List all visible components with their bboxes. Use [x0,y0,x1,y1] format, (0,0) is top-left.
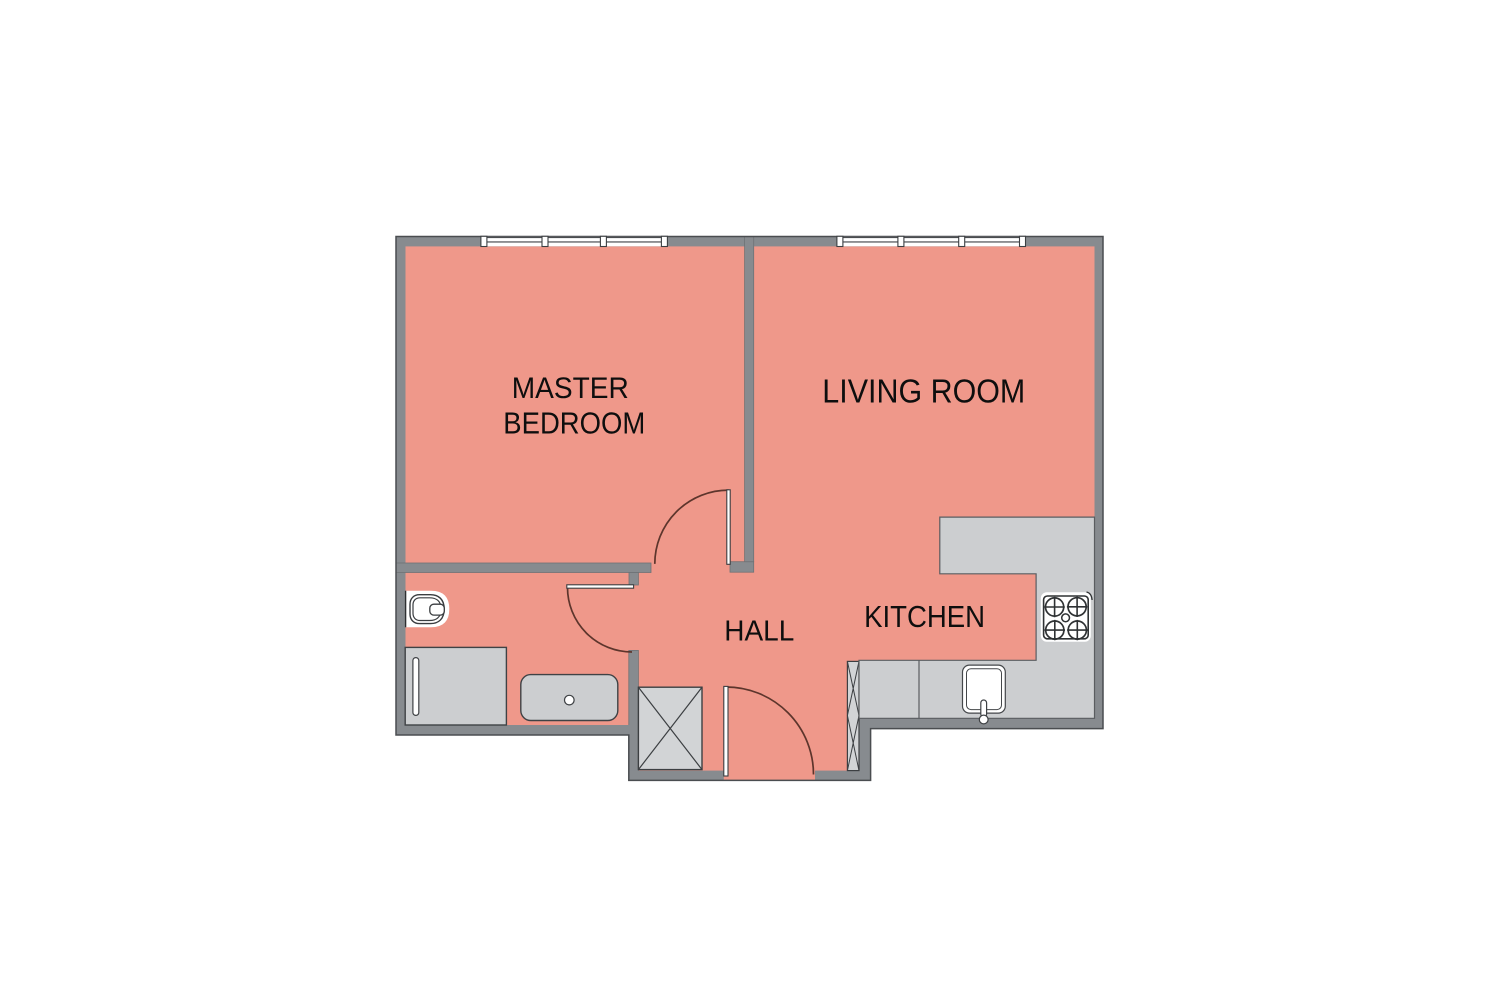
svg-text:BEDROOM: BEDROOM [503,407,645,440]
svg-text:MASTER: MASTER [512,373,629,405]
svg-text:HALL: HALL [724,616,794,648]
svg-text:LIVING ROOM: LIVING ROOM [822,372,1025,409]
svg-text:KITCHEN: KITCHEN [864,600,985,634]
